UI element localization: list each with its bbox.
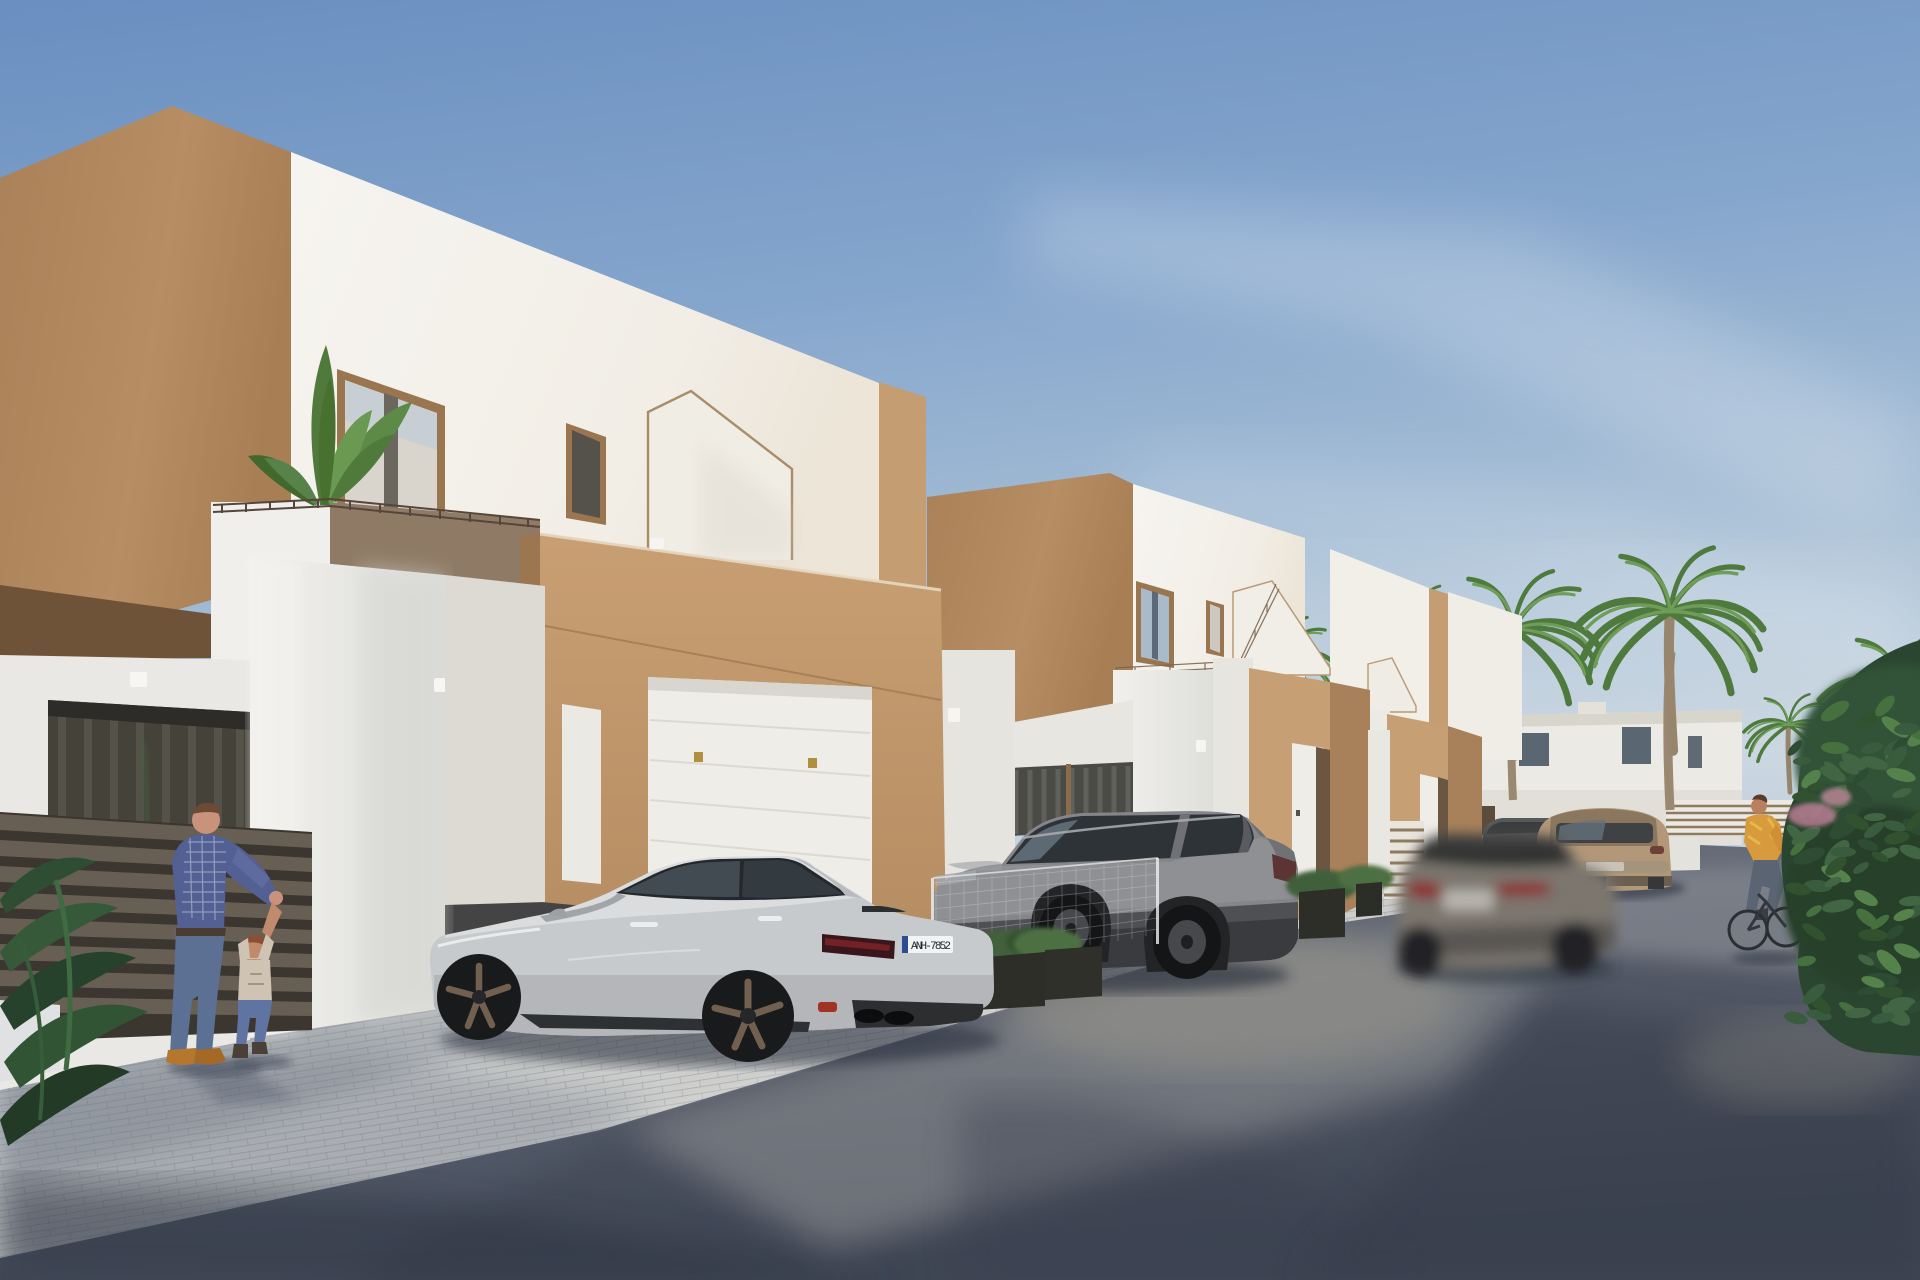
svg-text:ANH-7852: ANH-7852 <box>911 941 951 953</box>
